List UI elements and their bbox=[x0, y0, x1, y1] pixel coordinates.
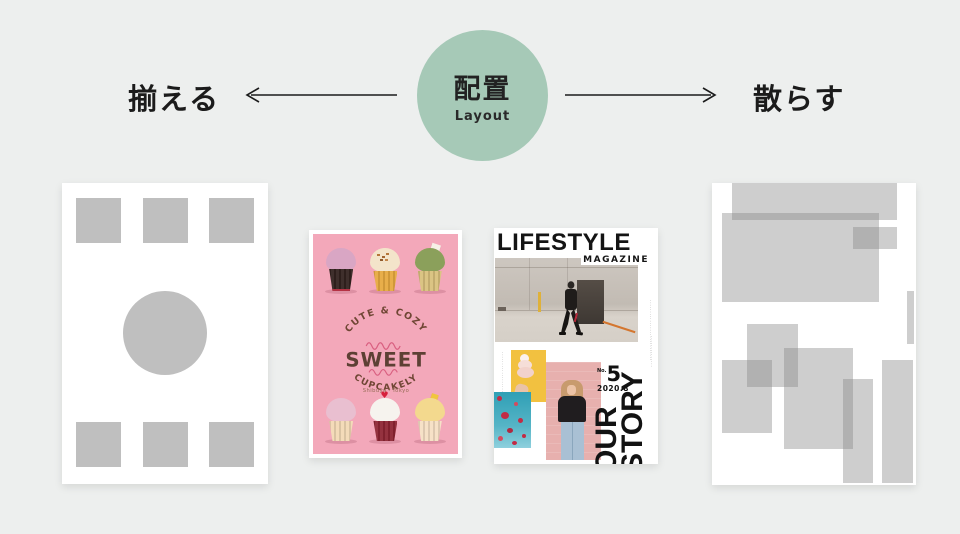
flowers-photo bbox=[494, 392, 531, 448]
wrapper bbox=[329, 269, 353, 291]
frosting bbox=[415, 248, 445, 272]
placeholder-block bbox=[209, 422, 254, 467]
scatter-block bbox=[907, 291, 914, 344]
frosting bbox=[326, 398, 356, 422]
cupcake-matcha bbox=[412, 248, 448, 294]
wrapper bbox=[418, 271, 442, 291]
cupcake-poster: CUTE & COZY SWEET CUPCAKELY Shibuya・Toky… bbox=[309, 230, 462, 458]
walking-man-silhouette bbox=[553, 280, 587, 338]
issue-label: No. bbox=[597, 368, 607, 374]
sprinkles bbox=[377, 254, 380, 256]
wrapper bbox=[329, 421, 353, 441]
scatter-block bbox=[882, 360, 913, 483]
cupcakery-emblem: CUTE & COZY SWEET CUPCAKELY Shibuya・Toky… bbox=[320, 294, 452, 398]
arrow-right-icon bbox=[565, 86, 721, 104]
scatter-label: 散らす bbox=[753, 76, 845, 118]
face bbox=[567, 385, 576, 395]
placeholder-circle bbox=[123, 291, 207, 375]
aligned-top-row bbox=[76, 198, 254, 243]
placeholder-block bbox=[76, 422, 121, 467]
cupcake-heart: ♥ bbox=[367, 398, 403, 444]
svg-text:CUTE & COZY: CUTE & COZY bbox=[342, 305, 428, 334]
micro-text: ·················· bbox=[500, 352, 504, 393]
scattered-layout-poster bbox=[712, 183, 916, 485]
layout-infographic: 揃える 配置 Layout 散らす bbox=[0, 0, 960, 534]
placeholder-block bbox=[209, 198, 254, 243]
frosting bbox=[370, 398, 400, 422]
emblem-title: SWEET bbox=[345, 349, 426, 372]
magazine-subtitle: MAGAZINE bbox=[581, 255, 651, 265]
black-tshirt bbox=[558, 396, 586, 422]
cupcake-lavender bbox=[323, 248, 359, 294]
cupcake-top-row bbox=[319, 248, 452, 294]
arrow-left-icon bbox=[241, 86, 397, 104]
emblem-arc-top: CUTE & COZY bbox=[342, 305, 428, 334]
align-label: 揃える bbox=[128, 76, 220, 118]
placeholder-block bbox=[143, 198, 188, 243]
frosting bbox=[326, 248, 356, 272]
hub-title: 配置 bbox=[454, 67, 512, 106]
lifestyle-magazine-poster: LIFESTYLE MAGAZINE ·····················… bbox=[494, 228, 658, 464]
yellow-pole bbox=[538, 292, 541, 312]
garage-photo bbox=[495, 258, 638, 342]
scatter-block bbox=[853, 227, 897, 249]
cupcake-bottom-row: ♥ bbox=[319, 398, 452, 444]
wrapper bbox=[418, 421, 442, 441]
wrapper bbox=[373, 421, 397, 441]
placeholder-block bbox=[143, 422, 188, 467]
cupcake-cream bbox=[367, 248, 403, 294]
frosting bbox=[370, 248, 400, 272]
placeholder-block bbox=[76, 198, 121, 243]
issue-date: 2020.8 bbox=[597, 384, 629, 393]
micro-text: ·············· bbox=[649, 336, 653, 368]
magazine-title: LIFESTYLE bbox=[497, 229, 655, 257]
cupcake-pink-swirl bbox=[323, 398, 359, 444]
cupcake-lemon bbox=[412, 398, 448, 444]
layout-hub-circle: 配置 Layout bbox=[417, 30, 548, 161]
frosting bbox=[415, 398, 445, 422]
scatter-block bbox=[843, 379, 873, 483]
cupcake-poster-background: CUTE & COZY SWEET CUPCAKELY Shibuya・Toky… bbox=[313, 234, 458, 454]
scatter-block bbox=[722, 360, 772, 433]
issue-number: 5 bbox=[607, 364, 622, 384]
hub-subtitle: Layout bbox=[455, 109, 511, 124]
issue-block: No. 5 2020.8 bbox=[597, 364, 629, 393]
wrapper bbox=[373, 271, 397, 291]
aligned-bottom-row bbox=[76, 422, 254, 467]
aligned-layout-poster bbox=[62, 183, 268, 484]
